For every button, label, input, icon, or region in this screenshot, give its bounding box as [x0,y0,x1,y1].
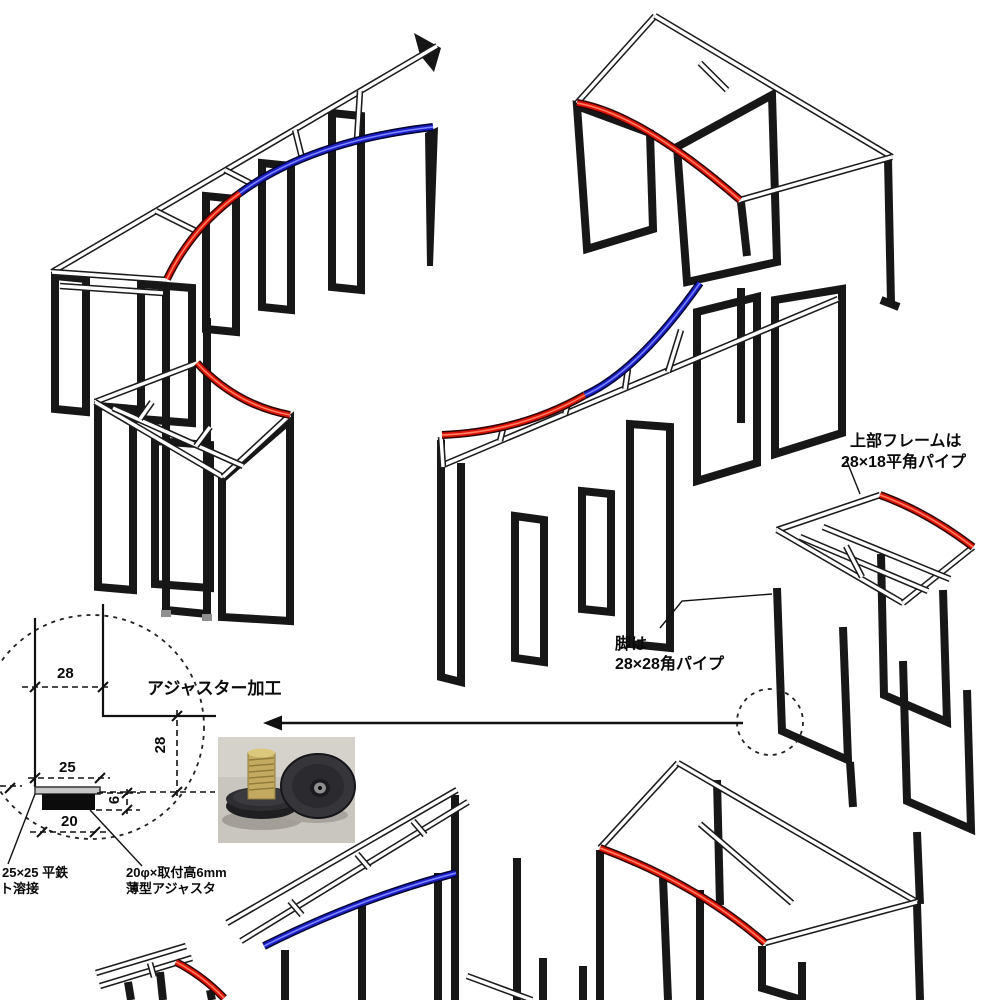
adjuster-note-line1: 20φ×取付高6mm [126,865,227,880]
dim-leg-height: 28 [152,737,169,754]
curved-pipe-red [880,495,973,547]
dim-adjuster-diameter: 20 [61,813,78,830]
frame-run-upper-left [52,33,441,621]
dim-adjuster-height: 6 [106,796,123,804]
adjuster-foot-lying [280,754,355,818]
frame-table-bottom-right [600,763,920,1000]
frame-table-upper-right [577,16,899,307]
adjuster-section [42,794,95,810]
adjuster-note-line2: 薄型アジャスタ [126,881,216,896]
legs-label-line2: 28×28角パイプ [615,654,725,673]
label-legs: 脚は 28×28角パイプ [615,594,772,673]
adjuster-photo [218,737,355,843]
adjuster-detail-drawing [0,604,216,866]
detail-circle-leg-foot [737,689,803,755]
assembly-diagram-page: 上部フレームは 28×18平角パイプ 脚は 28×28角パイプ アジャスター加工… [0,0,1000,1000]
label-adjuster-note: 20φ×取付高6mm 薄型アジャスタ [126,865,227,896]
frame-table-exploded [737,495,973,904]
dim-plate-width: 25 [59,759,76,776]
assembly-diagram: 上部フレームは 28×18平角パイプ 脚は 28×28角パイプ アジャスター加工… [0,0,1000,1000]
detail-arrow [263,716,743,731]
frame-table-bottom-left [96,946,224,1000]
plate-note-line2: ト溶接 [0,881,39,896]
label-upper-frame: 上部フレームは 28×18平角パイプ [841,431,967,494]
flat-plate-section [35,787,100,794]
adjuster-title-label: アジャスター加工 [147,679,281,698]
plate-note-line1: 25×25 平鉄 [2,865,68,880]
legs-label-line1: 脚は [615,635,647,653]
curved-pipe-red [176,962,224,998]
label-plate-note: 25×25 平鉄 ト溶接 [0,865,68,896]
dim-leg-width: 28 [57,665,74,682]
upper-frame-label-line2: 28×18平角パイプ [841,452,967,471]
upper-frame-label-line1: 上部フレームは [850,431,962,450]
